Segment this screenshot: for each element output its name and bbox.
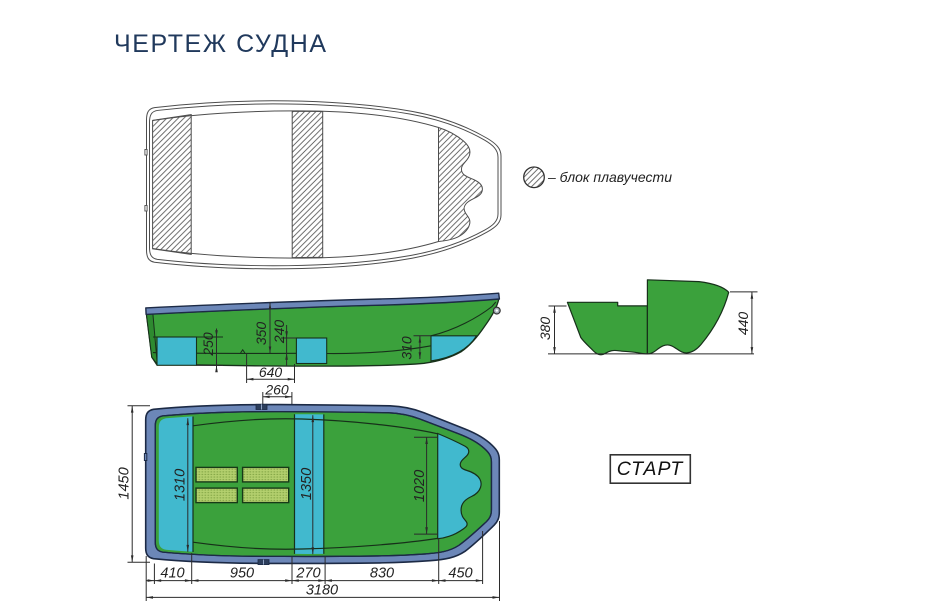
- svg-text:350: 350: [253, 322, 269, 346]
- svg-text:450: 450: [448, 566, 472, 582]
- svg-text:410: 410: [160, 566, 184, 582]
- svg-text:260: 260: [264, 382, 289, 398]
- svg-text:– блок плавучести: – блок плавучести: [547, 169, 672, 185]
- svg-text:830: 830: [370, 566, 394, 582]
- svg-text:СТАРТ: СТАРТ: [617, 458, 685, 480]
- svg-text:380: 380: [537, 317, 553, 341]
- svg-text:1450: 1450: [117, 467, 133, 499]
- svg-text:310: 310: [398, 336, 414, 360]
- svg-text:ЧЕРТЕЖ СУДНА: ЧЕРТЕЖ СУДНА: [114, 30, 328, 58]
- svg-text:440: 440: [735, 312, 751, 336]
- svg-text:950: 950: [230, 566, 254, 582]
- svg-text:240: 240: [271, 320, 287, 345]
- svg-text:1020: 1020: [412, 470, 428, 502]
- svg-text:3180: 3180: [306, 583, 338, 599]
- svg-text:1350: 1350: [299, 468, 315, 500]
- svg-text:250: 250: [200, 332, 216, 357]
- svg-text:1310: 1310: [173, 469, 189, 501]
- svg-text:270: 270: [295, 566, 320, 582]
- svg-text:640: 640: [259, 364, 283, 380]
